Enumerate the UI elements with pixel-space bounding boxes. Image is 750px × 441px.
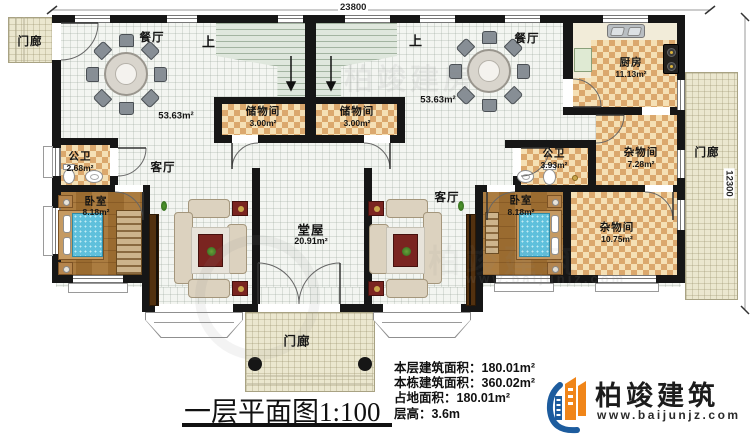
stat-footprint-area: 占地面积：180.01m² <box>394 391 535 406</box>
room-label-bath-left: 公卫 <box>69 149 92 164</box>
room-label-utility-lower: 杂物间 <box>600 220 635 235</box>
stat-floor-area: 本层建筑面积：180.01m² <box>394 361 535 376</box>
room-label-storage-right: 储物间 <box>340 104 375 119</box>
porch-detail-lines <box>16 17 373 384</box>
dimension-top: 23800 <box>338 2 368 13</box>
room-label-bath-right: 公卫 <box>543 146 566 161</box>
room-area-dining-right: 53.63m² <box>420 95 455 106</box>
room-label-dining-right: 餐厅 <box>515 30 540 46</box>
brand-logo-icon <box>545 372 591 436</box>
room-label-living-left: 客厅 <box>151 159 176 175</box>
room-label-storage-left: 储物间 <box>246 104 281 119</box>
room-label-kitchen: 厨房 <box>620 55 643 70</box>
title-underline <box>182 423 392 427</box>
dimension-right: 12300 <box>724 168 735 198</box>
room-area-bedroom-right: 8.18m² <box>508 207 535 217</box>
room-label-porch-top-left: 门廊 <box>18 33 43 49</box>
floor-plan-page: 门廊 餐厅 53.63m² 上 储物间 3.00m² 储物间 3.00m² 上 … <box>0 0 750 441</box>
brand-logo: 柏竣建筑 www.baijunjz.com <box>545 372 745 438</box>
room-area-kitchen: 11.13m² <box>615 69 646 79</box>
room-area-storage-left: 3.00m² <box>250 118 277 128</box>
room-area-storage-right: 3.00m² <box>344 118 371 128</box>
brand-url: www.baijunjz.com <box>597 408 741 422</box>
stairs-up-label-right: 上 <box>409 31 423 50</box>
stat-floor-height: 层高：3.6m <box>394 407 535 422</box>
room-label-bedroom-right: 卧室 <box>510 193 533 208</box>
stairs-up-label-left: 上 <box>202 32 216 51</box>
room-area-hall: 20.91m² <box>294 236 328 246</box>
room-label-porch-right: 门廊 <box>695 144 720 160</box>
room-area-bedroom-left: 8.18m² <box>83 207 110 217</box>
room-label-utility-upper: 杂物间 <box>624 145 659 160</box>
room-area-bath-left: 2.68m² <box>67 163 94 173</box>
room-area-bath-right: 3.93m² <box>541 160 568 170</box>
room-area-utility-lower: 10.75m² <box>601 234 633 244</box>
building-stats: 本层建筑面积：180.01m² 本栋建筑面积：360.02m² 占地面积：180… <box>394 361 535 422</box>
stat-building-area: 本栋建筑面积：360.02m² <box>394 376 535 391</box>
room-label-porch-bottom: 门廊 <box>283 331 310 350</box>
room-area-utility-upper: 7.28m² <box>628 159 655 169</box>
room-label-living-right: 客厅 <box>435 189 460 205</box>
stair-arrows <box>287 56 335 90</box>
room-area-dining-left: 53.63m² <box>158 111 193 122</box>
room-label-dining-left: 餐厅 <box>140 29 165 45</box>
